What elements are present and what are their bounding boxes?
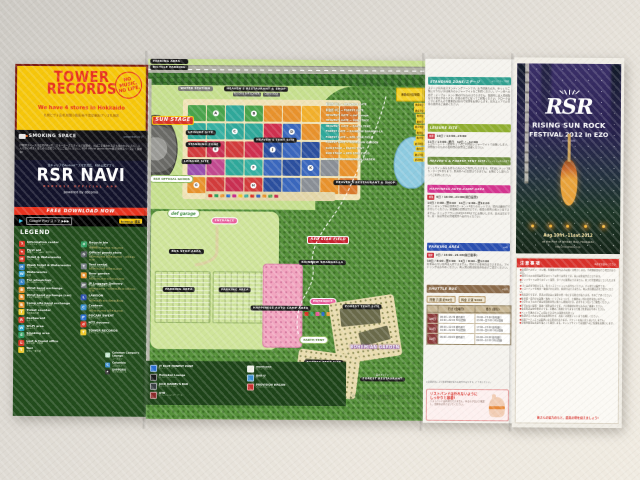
- sponsor-icon: C: [105, 362, 110, 367]
- legend-sponsor-item: C Columbiaコロンビア: [105, 362, 144, 368]
- info-panel: STANDING ZONE/ステージ ※エリアマップ参照 ステージ前方はスタンデ…: [423, 59, 515, 424]
- shuttle-note: ※道路状況により所要時間が変わる場合があります。ご了承ください。: [426, 381, 492, 384]
- cover-place: at the Port of Ishikari Bay, Hokkaido: [516, 239, 620, 244]
- shuttle-back-times: 20:00~23:00 随時運行 23:00~翌3:00 30分間隔: [474, 314, 511, 323]
- sponsor-legend-item: JT BLUE HONEST ZONEジェイティーゾーン: [150, 365, 212, 372]
- sponsor-legend-item: morriconeモリコーネカフェ: [247, 365, 309, 372]
- schedule-time: 10日 / 13:00~24:00: [437, 134, 467, 138]
- map-legend: LEGEND ? Information centerインフォメーション + F…: [13, 226, 147, 417]
- shuttle-col-back: 帰り (駅行): [474, 306, 511, 312]
- auto-camp-body: オートキャンプ券は車両1台・テント1張りのセットです。場内は最徐行で走行してくだ…: [427, 205, 510, 240]
- legend-item-hours: 10日/9:00-23:00 ・11日/8:00-翌1:00 12日/6:00-…: [89, 288, 137, 293]
- legend-sponsor-item: C Coleman Camper's Loungeコールマン: [105, 353, 144, 361]
- shuttle-timetable: 行き (会場行) 帰り (駅行) 10日 08:00~15:30 随時運行 16…: [426, 305, 511, 345]
- sponsor-legend-icon: [247, 383, 254, 390]
- sponsor-legend-jp: ハイネケンラウンジ: [159, 377, 185, 379]
- cover-panel: RSR RISING SUN ROCK FESTIVAL 2012 in EZO…: [512, 57, 625, 428]
- app-powered-by: powered by döcomo: [14, 190, 147, 195]
- legend-item: ♻ Recycle binゴミステーション(分別回収) 9:00-22:00 /…: [81, 241, 137, 249]
- legend-item-icon: L: [18, 340, 24, 346]
- section-note: ※P券: [503, 246, 508, 249]
- legend-item: B Wrist band exchange (car)クルマで来場の方 交換所: [19, 294, 79, 300]
- shuttle-day: 10日: [427, 314, 438, 323]
- legend-item-jp: トイレ・水道: [27, 259, 61, 262]
- map-credit: この地図は国土地理院発行の数値地図をもとに作成しています。会場レイアウトは変更に…: [350, 394, 420, 400]
- legend-item-jp: クルマで来場の方 交換所: [27, 297, 72, 300]
- legend-item-icon: G: [81, 251, 87, 257]
- legend-column-1: ? Information centerインフォメーション + First ai…: [18, 241, 79, 354]
- left-panel: TOWER RECORDS NO MUSIC, NO LIFE. We have…: [13, 64, 148, 417]
- legend-item-icon: ♻: [81, 241, 87, 247]
- legend-item-icon: W: [19, 271, 25, 277]
- section-bar-shuttle-bus: SHUTTLE BUS ※有料: [427, 285, 510, 294]
- note-line: ●深夜時間帯は音量を落として運営します。キャンプサイトでは周囲へのご配慮をお願い…: [519, 322, 615, 325]
- legend-item-icon: B: [81, 273, 87, 279]
- legend-item-jp: ドコモブース: [88, 325, 109, 328]
- legend-item-jp: レストラン: [26, 320, 45, 323]
- legend-item: W Waterworks水道: [19, 271, 79, 277]
- legend-item-jp: タクシー乗り場: [26, 351, 41, 354]
- section-title: STANDING ZONE/ステージ: [430, 78, 480, 83]
- schedule-tag: 開設: [428, 134, 435, 139]
- sponsor-legend-icon: [150, 374, 157, 381]
- legend-item: P POCARI SWEATポカリスエット: [80, 314, 136, 320]
- parking-body: 駐車券のない車両は入場できません。場内での車中泊はできません。アイドリングはおや…: [427, 263, 510, 282]
- tower-stores: 札幌ピヴォ店/札幌狸小路店/新千歳空港店/アリオ札幌店: [17, 112, 146, 117]
- shuttle-fare-row: 所要 片道 約50分 料金 片道 ¥600: [427, 296, 486, 303]
- legend-item: B Camp site band exchangeキャンプサイトの方 交換所: [19, 302, 79, 308]
- smoking-space-bar: SMOKING SPACE presented by JT: [15, 130, 148, 143]
- schedule-time: 9日 / 16:00~21:00(前日駐車): [436, 253, 478, 257]
- section-bar-standing-zone: STANDING ZONE/ステージ ※エリアマップ参照: [428, 77, 511, 86]
- legend-item-icon: +: [19, 248, 25, 254]
- sponsor-legend-item: JACK DANIEL'S BARジャックダニエルバー: [150, 383, 212, 390]
- smoking-note: JT喫煙スペースは会場内2ヶ所、スモーカーズスタイルで展開中。たばこを吸われる方…: [15, 142, 148, 161]
- legend-item-icon: T: [18, 347, 24, 353]
- sponsor-legend-item: PROVISION WAGONプロビジョンワゴン: [247, 383, 309, 390]
- legend-item-jp: リストバンド交換所: [27, 290, 63, 293]
- app-name: RSR NAVI: [14, 166, 147, 186]
- legend-item: B Wrist band exchangeリストバンド交換所: [19, 286, 79, 292]
- photo-of-festival-map-brochure: { "left_panel": { "tower": { "title1": "…: [0, 0, 640, 480]
- sponsor-icon: ★: [105, 369, 110, 374]
- wristband-notice: リストバンドは外れないように しっかりと装着! リストバンドは再発行できません。…: [426, 389, 509, 422]
- sponsor-legend-icon: [247, 365, 254, 372]
- sponsor-legend-jp: ジャックダニエルバー: [159, 386, 188, 388]
- shuttle-day: 12日: [427, 334, 438, 343]
- search-tag: tower.jp 検索: [119, 219, 142, 224]
- tower-records-ad: TOWER RECORDS NO MUSIC, NO LIFE. We have…: [17, 66, 146, 131]
- sponsor-legend-item: BAR-Uバー・ユー: [247, 374, 309, 381]
- sponsor-legend-jp: オフィシャルツアーブース: [159, 395, 183, 397]
- sponsor-legend-jp: バー・ユー: [256, 378, 266, 380]
- shuttle-fare: 料金 片道 ¥600: [458, 296, 485, 303]
- legend-item-jp: インフォメーション: [27, 244, 59, 247]
- legend-item-icon: S: [18, 332, 24, 338]
- legend-item-icon: R: [18, 317, 24, 323]
- schedule-tag: 開設: [427, 195, 434, 200]
- legend-item: H Toilet & Waterworksトイレ・水道: [19, 256, 79, 262]
- festival-map-brochure: TOWER RECORDS NO MUSIC, NO LIFE. We have…: [13, 50, 628, 432]
- cigarette-icon: [19, 133, 26, 138]
- legend-item-jp: 水洗トイレ・水道: [27, 267, 71, 270]
- notes-footer: 皆さんの協力のもと、最高の朝を迎えましょう!: [519, 415, 617, 420]
- legend-item-jp: ポカリスエット: [88, 317, 113, 320]
- legend-item-icon: L: [81, 295, 87, 301]
- cover-title-line-1: RISING SUN ROCK: [517, 121, 621, 130]
- legend-item: T Tent rentalレンタルテント受付10日/9:00-22:00 11日…: [81, 263, 137, 271]
- legend-item: L LAWSONローソン10日/9:00-翌2:00 11日/8:00-翌2:0…: [81, 295, 137, 303]
- legend-item-icon: W: [18, 324, 24, 330]
- legend-item-hours: (分別回収) 9:00-22:00 / 6:00-22:00: [89, 247, 123, 250]
- section-title: HAPPINESS AUTO-CAMP AREA: [429, 187, 484, 191]
- notes-title: 注意事項: [520, 260, 541, 266]
- rsr-logo: RSR: [517, 93, 621, 119]
- legend-item: C Canteenカンティーン10日/10:00-23:00 11日/9:00-…: [80, 304, 136, 312]
- legend-item: S Smoking area喫煙所: [18, 332, 78, 338]
- legend-item-icon: B: [19, 294, 25, 300]
- shuttle-back-times: 17:00~23:00 随時運行 23:00~翌6:00 30分間隔: [474, 324, 511, 333]
- section-bar-leisure-site: LEISURE SITE: [428, 124, 511, 133]
- sponsor-legend-strip: JT BLUE HONEST ZONEジェイティーゾーン Heineken Lo…: [146, 361, 346, 406]
- shuttle-duration: 所要 片道 約50分: [427, 296, 456, 303]
- notes-subtitle: ※必ずお読みください: [594, 261, 616, 265]
- legend-item-icon: T: [80, 329, 86, 335]
- smoking-presented-by: presented by JT: [123, 135, 143, 138]
- legend-item-hours: 10日/9:00-23:00 11日/8:00-23:00 ・12日/6:00-…: [89, 257, 137, 262]
- schedule-tag: 開場: [427, 253, 434, 258]
- section-title: HEAVEN'S & FOREST TENT SITE: [430, 159, 486, 163]
- legend-item-icon: T: [81, 263, 87, 269]
- google-play-label: Google Play ストア ▶▶▶: [26, 216, 72, 224]
- legend-item: T Ticket counter当日券売り場: [18, 309, 78, 315]
- google-play-row: Google Play ストア ▶▶▶ tower.jp 検索: [14, 215, 147, 227]
- legend-item-jp: 水道: [27, 275, 47, 278]
- legend-item-jp: 当日券売り場: [26, 313, 50, 316]
- legend-item-jp: 落とし物・忘れ物: [26, 343, 58, 346]
- sponsor-legend-jp: プロビジョンワゴン: [256, 387, 285, 389]
- legend-item-icon: P: [80, 314, 86, 320]
- rsr-navi-app-ad: 全キャリアのAndroid™スマホ対応、RSR公式アプリ RSR NAVI RS…: [14, 160, 147, 227]
- sponsor-legend-item: Heineken Loungeハイネケンラウンジ: [150, 374, 212, 381]
- section-title: LEISURE SITE: [430, 126, 458, 130]
- sponsor-legend-jp: モリコーネカフェ: [256, 369, 272, 371]
- legend-item-icon: B: [19, 302, 25, 308]
- legend-item-icon: JP: [81, 282, 87, 288]
- sponsor-legend-icon: [150, 365, 157, 372]
- section-note: ※テントサイト券が必要です: [486, 160, 512, 163]
- sponsor-legend-icon: [247, 374, 254, 381]
- legend-item: H Wash toilet & Waterworks水洗トイレ・水道: [19, 264, 79, 270]
- shuttle-table-row: 11日 08:00~12:00 随時運行 16:00~22:00 30分間隔 1…: [427, 323, 510, 334]
- legend-item: JP JP Luggage Delivery手荷物・宅配便預かり所10日/9:0…: [81, 282, 137, 293]
- leisure-body: レジャーシート・簡易チェアのご利用はレジャーサイトでお願いします。場所取りのため…: [428, 143, 511, 155]
- sponsor-legend-icon: [150, 383, 157, 390]
- legend-item: d NTT docomoドコモブース: [80, 322, 136, 328]
- shuttle-go-times: 08:00~12:00 随時運行 16:00~22:00 30分間隔: [438, 324, 474, 333]
- legend-item-jp: 車イス対応トイレ・スロープ: [27, 282, 54, 285]
- legend-item: G Official goods storeオフィシャルグッズストア10日/9:…: [81, 251, 137, 262]
- legend-sponsor-item: ★ SAPPOROサッポロビール: [105, 369, 144, 375]
- section-title: SHUTTLE BUS: [429, 287, 457, 291]
- shuttle-back-times: 06:00~09:00 随時運行 09:00~12:00 30分間隔: [474, 334, 511, 343]
- legend-item-icon: ?: [19, 241, 25, 247]
- cover-artwork: RSR RISING SUN ROCK FESTIVAL 2012 in EZO…: [516, 63, 621, 254]
- legend-item-icon: C: [81, 304, 87, 310]
- shuttle-go-times: 06:00~09:00 随時運行: [438, 334, 474, 343]
- legend-item: ♿ For wheelchair車イス対応トイレ・スロープ: [19, 279, 79, 285]
- sponsor-icon: C: [105, 353, 110, 358]
- shuttle-table-row: 10日 08:00~15:30 随時運行 16:00~22:00 30分間隔 2…: [427, 313, 510, 324]
- legend-item-jp: キャンプサイトの方 交換所: [27, 305, 71, 308]
- legend-title: LEGEND: [20, 229, 147, 237]
- legend-item: R Restaurantレストラン: [18, 317, 78, 323]
- parking-schedule: 開場9日 / 16:00~21:00(前日駐車)10日 / 8:00~翌3:00…: [427, 253, 510, 263]
- section-bar-tent-site: HEAVEN'S & FOREST TENT SITE ※テントサイト券が必要で…: [428, 157, 511, 166]
- legend-item-jp: タワーレコードブース: [88, 332, 117, 335]
- notes-section: 注意事項 ※必ずお読みください ●会場内へのビン・カン類、危険物の持ち込みは固く…: [515, 257, 620, 424]
- legend-item: + First aid救護テント・AED・お手伝い: [19, 248, 79, 254]
- sponsor-legend-jp: ジェイティーゾーン: [159, 368, 193, 370]
- sponsor-jp: コロンビア: [112, 365, 126, 368]
- legend-item-icon: ♿: [19, 279, 25, 285]
- legend-item-icon: H: [19, 264, 25, 270]
- legend-column-sponsors: C Coleman Camper's Loungeコールマン C Columbi…: [105, 353, 144, 375]
- section-bar-auto-camp: HAPPINESS AUTO-CAMP AREA: [427, 185, 510, 194]
- notes-body: ●会場内へのビン・カン類、危険物の持ち込みは固くお断りします。手荷物検査を行う場…: [516, 267, 618, 327]
- legend-item-jp: 救護テント・AED・お手伝い: [27, 252, 54, 255]
- legend-item: T Taxiタクシー乗り場: [18, 347, 78, 353]
- tower-subtitle: We have 4 stores in Hokkaido: [17, 105, 146, 112]
- section-note: ※有料: [502, 288, 508, 291]
- legend-item-icon: H: [19, 256, 25, 262]
- sponsor-legend-item: OTBオフィシャルツアーブース: [150, 392, 212, 399]
- legend-column-2: ♻ Recycle binゴミステーション(分別回収) 9:00-22:00 /…: [80, 241, 137, 335]
- auto-camp-schedule: 開設9日 / 16:00~21:00(前日設営)10日 / 9:00~翌3:00…: [427, 195, 510, 205]
- legend-item-icon: B: [19, 286, 25, 292]
- wristband-hand-illustration: [489, 397, 505, 417]
- wristband-body: リストバンドは再発行できません。ゆるみがないか確認し、会期中は外さないでください…: [430, 401, 486, 407]
- shuttle-table-row: 12日 06:00~09:00 随時運行 06:00~09:00 随時運行 09…: [427, 333, 510, 344]
- section-bar-parking: PARKING AREA ※P券: [427, 243, 510, 252]
- legend-item-icon: T: [18, 309, 24, 315]
- section-note: ※エリアマップ参照: [491, 80, 509, 83]
- legend-item-jp: 喫煙所: [26, 335, 49, 338]
- legend-item: W Wi-Fi areaWi-Fiエリア: [18, 324, 78, 330]
- legend-item-hours: 10日/10:00-23:00 11日/9:00-23:00: [88, 310, 122, 313]
- smoking-space-label: SMOKING SPACE: [29, 133, 77, 138]
- shuttle-go-times: 08:00~15:30 随時運行 16:00~22:00 30分間隔: [438, 314, 474, 323]
- legend-item: L Lost & found office落とし物・忘れ物: [18, 340, 78, 346]
- standing-zone-body: ステージ前方はスタンディングゾーンです。お子様連れの方、ゆっくりご覧になりたい方…: [428, 87, 511, 122]
- tent-site-body: テントサイト券をお持ちの方のみご利用いただけます。1区画にテント1張り・タープ1…: [427, 167, 510, 183]
- legend-item: T TOWER RECORDSタワーレコードブース: [80, 329, 136, 335]
- legend-item-icon: d: [80, 322, 86, 328]
- schedule-time: 9日 / 16:00~21:00(前日設営): [436, 195, 478, 199]
- cover-date: Aug.10fri.-11sat.2012: [516, 232, 620, 238]
- shuttle-col-go: 行き (会場行): [439, 306, 475, 312]
- section-title: PARKING AREA: [429, 245, 460, 249]
- legend-item-jp: Wi-Fiエリア: [26, 328, 43, 331]
- sponsor-jp: サッポロビール: [112, 372, 127, 375]
- shuttle-day: 11日: [427, 324, 438, 333]
- legend-item: B Beer gardenビアガーデン10日/12:00-23:00 11日/1…: [81, 273, 137, 281]
- legend-item: ? Information centerインフォメーション: [19, 241, 79, 247]
- site-map-panel: ABCDEJFKGH PARKING AREA BICYCLE PARKING …: [146, 59, 426, 421]
- sponsor-jp: コールマン: [112, 358, 144, 361]
- google-play-icon: [19, 218, 23, 222]
- sponsor-legend-icon: [150, 392, 157, 399]
